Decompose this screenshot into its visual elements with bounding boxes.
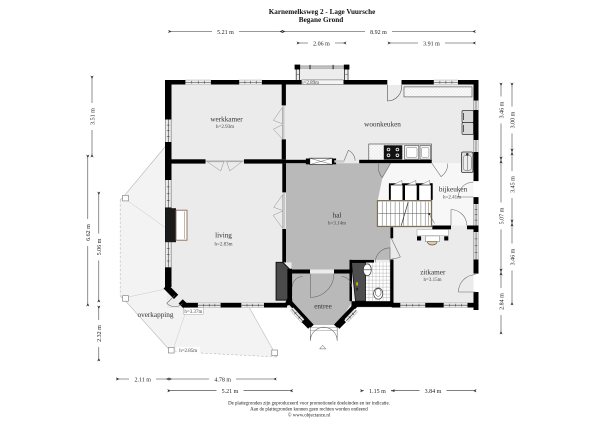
svg-text:5.06 m: 5.06 m [97, 238, 103, 255]
svg-text:h=3.15m: h=3.15m [424, 278, 442, 283]
svg-text:hal: hal [333, 212, 342, 220]
svg-text:bijkeuken: bijkeuken [439, 186, 468, 194]
svg-text:De plattegronden zijn geproduc: De plattegronden zijn geproduceerd voor … [228, 402, 390, 407]
svg-text:living: living [215, 232, 232, 240]
svg-text:zitkamer: zitkamer [420, 269, 446, 277]
svg-text:h=3.37m: h=3.37m [184, 310, 202, 315]
svg-text:overkapping: overkapping [138, 311, 174, 319]
svg-text:1.15 m: 1.15 m [369, 389, 386, 395]
svg-text:© www.objectance.nl: © www.objectance.nl [288, 413, 331, 419]
svg-text:woonkeuken: woonkeuken [364, 121, 401, 129]
svg-text:3.46 m: 3.46 m [510, 248, 516, 265]
svg-text:h=3.14m: h=3.14m [328, 222, 346, 227]
svg-text:h=2.93m: h=2.93m [216, 125, 234, 130]
svg-text:h=2.85m: h=2.85m [179, 349, 197, 354]
svg-text:4.78 m: 4.78 m [214, 377, 231, 383]
svg-text:h=2.41m: h=2.41m [443, 196, 461, 201]
svg-text:2.06 m: 2.06 m [313, 41, 330, 47]
svg-text:5.21 m: 5.21 m [222, 389, 239, 395]
svg-text:3.51 m: 3.51 m [90, 108, 96, 125]
svg-text:h=2.83m: h=2.83m [215, 243, 233, 248]
svg-text:8.92 m: 8.92 m [370, 30, 387, 36]
svg-text:2.32 m: 2.32 m [97, 325, 103, 342]
svg-text:Karnemelksweg 2 - Lage Vuursch: Karnemelksweg 2 - Lage Vuursche [269, 8, 376, 16]
svg-text:h=2.89m: h=2.89m [301, 81, 319, 86]
svg-text:2.11 m: 2.11 m [134, 377, 151, 383]
svg-text:3.84 m: 3.84 m [425, 389, 442, 395]
svg-text:entree: entree [314, 303, 332, 311]
svg-text:3.00 m: 3.00 m [510, 111, 516, 128]
svg-text:6.62 m: 6.62 m [86, 224, 92, 241]
svg-text:3.91 m: 3.91 m [423, 41, 440, 47]
svg-text:Aan de plattegronden kunnen ge: Aan de plattegronden kunnen geen rechten… [250, 408, 368, 413]
svg-text:3.45 m: 3.45 m [510, 176, 516, 193]
svg-text:2.84 m: 2.84 m [499, 293, 505, 310]
svg-text:5.21 m: 5.21 m [217, 30, 234, 36]
svg-text:5.07 m: 5.07 m [499, 207, 505, 224]
svg-text:werkkamer: werkkamer [210, 116, 243, 124]
svg-text:Begane Grond: Begane Grond [299, 16, 343, 24]
svg-text:3.46 m: 3.46 m [499, 101, 505, 118]
